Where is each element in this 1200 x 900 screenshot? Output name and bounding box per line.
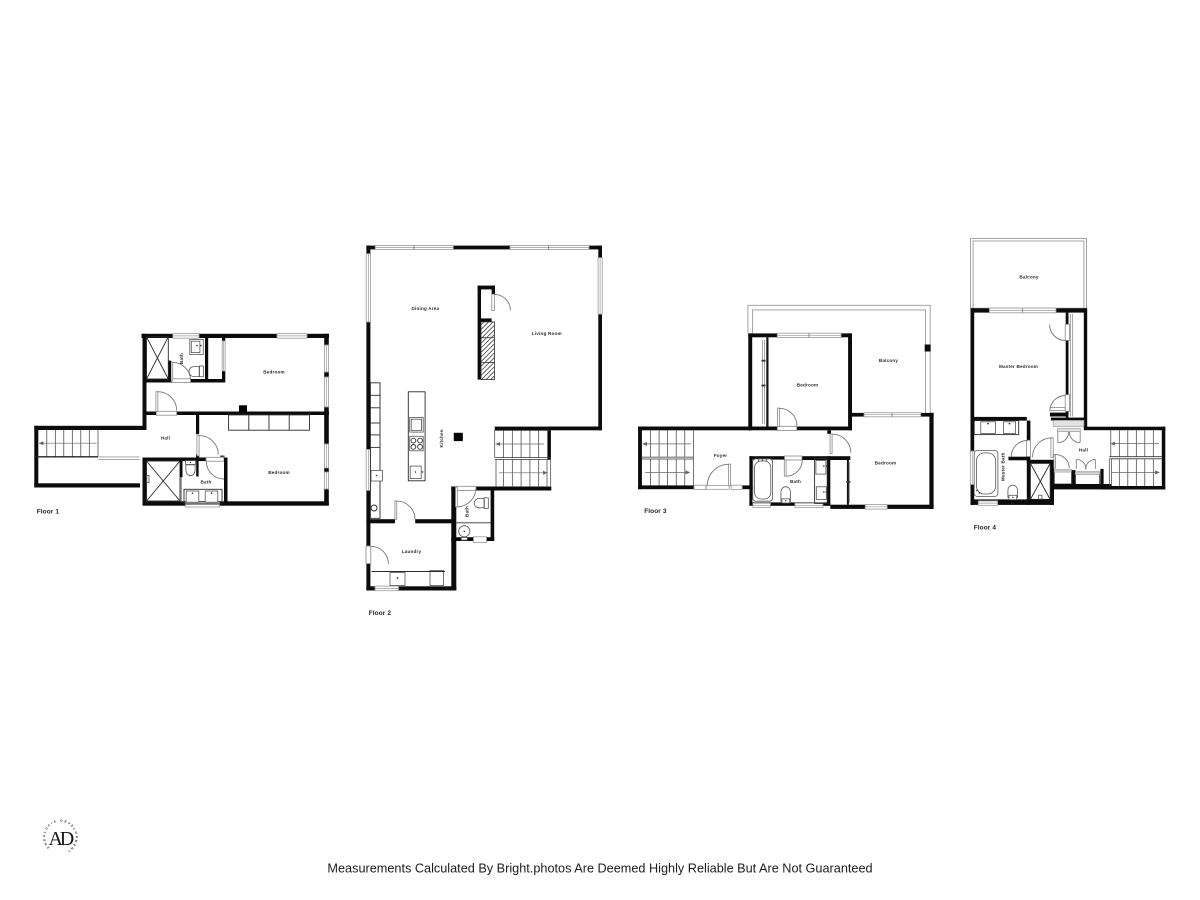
svg-text:Floor 3: Floor 3: [644, 508, 667, 515]
svg-text:Master Bath: Master Bath: [1001, 453, 1006, 482]
svg-text:Foyer: Foyer: [714, 453, 728, 458]
svg-text:AD: AD: [49, 828, 74, 850]
svg-text:Hall: Hall: [1079, 447, 1088, 452]
svg-text:Laundry: Laundry: [402, 549, 422, 554]
svg-text:Bedroom: Bedroom: [875, 460, 897, 465]
svg-text:Bath: Bath: [179, 353, 184, 364]
svg-text:Bedroom: Bedroom: [797, 382, 819, 387]
svg-text:Floor 4: Floor 4: [974, 524, 997, 531]
svg-text:Dining Area: Dining Area: [411, 306, 439, 311]
svg-text:Bedroom: Bedroom: [263, 370, 285, 375]
svg-text:Master Bedroom: Master Bedroom: [999, 364, 1038, 369]
svg-text:Floor 2: Floor 2: [369, 610, 392, 617]
svg-text:Bath: Bath: [200, 480, 211, 485]
svg-text:Floor 1: Floor 1: [37, 509, 60, 516]
svg-text:Living Room: Living Room: [532, 331, 562, 336]
svg-text:Balcony: Balcony: [879, 358, 899, 363]
svg-text:Bath: Bath: [465, 506, 470, 517]
svg-text:Kitchen: Kitchen: [439, 429, 444, 447]
svg-text:Bedroom: Bedroom: [268, 470, 290, 475]
svg-text:Balcony: Balcony: [1019, 274, 1039, 279]
svg-text:Bath: Bath: [790, 479, 801, 484]
svg-text:Hall: Hall: [161, 436, 170, 441]
svg-text:Measurements Calculated By Bri: Measurements Calculated By Bright.photos…: [327, 862, 872, 876]
